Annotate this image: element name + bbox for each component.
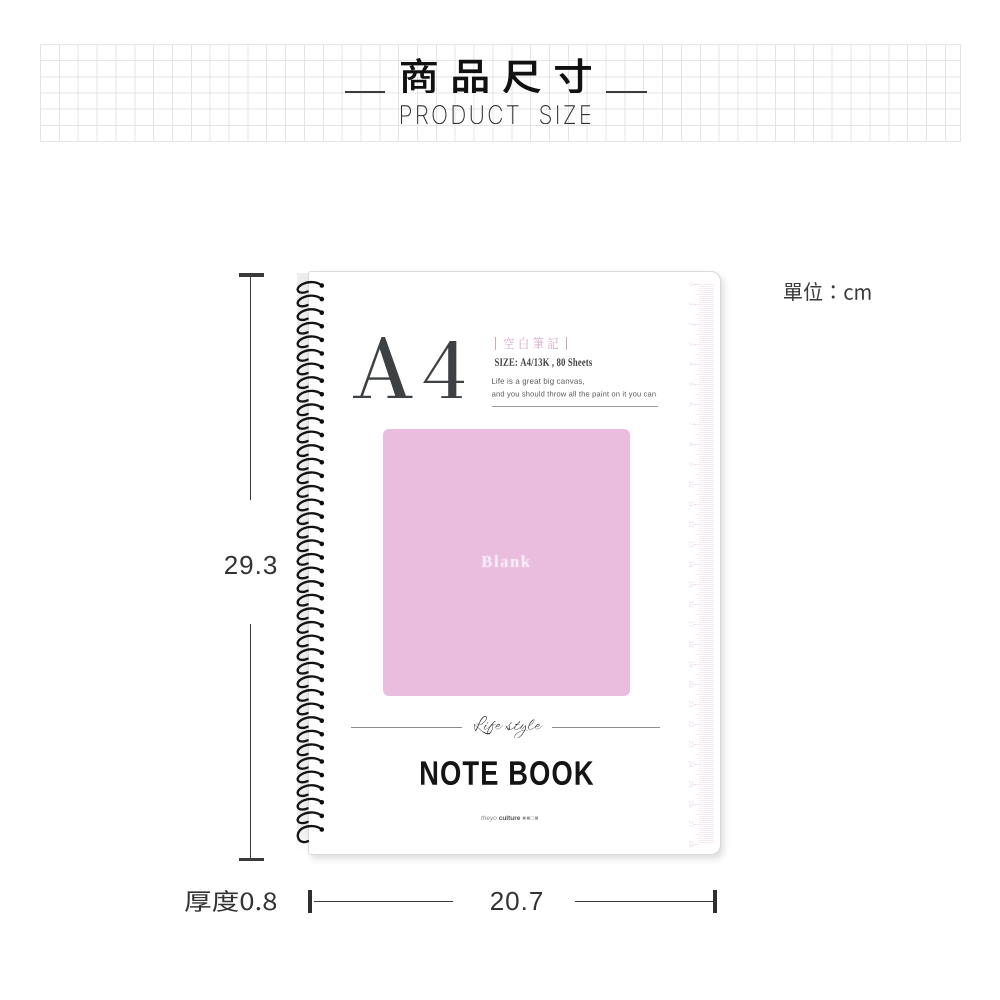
svg-text:13: 13 [687, 540, 694, 548]
svg-text:11: 11 [687, 501, 694, 508]
svg-text:0: 0 [687, 282, 694, 286]
svg-text:15: 15 [687, 580, 694, 588]
svg-text:19: 19 [687, 660, 694, 668]
svg-text:7: 7 [687, 422, 694, 426]
svg-text:1: 1 [687, 302, 694, 306]
svg-text:10: 10 [687, 480, 694, 488]
svg-text:24: 24 [687, 760, 694, 768]
svg-text:8: 8 [687, 442, 694, 446]
svg-text:17: 17 [687, 620, 694, 628]
svg-text:5: 5 [687, 382, 694, 386]
svg-text:20: 20 [687, 680, 694, 688]
svg-text:9: 9 [687, 462, 694, 466]
svg-text:26: 26 [687, 800, 694, 808]
svg-text:25: 25 [687, 780, 694, 788]
svg-text:18: 18 [687, 640, 694, 648]
svg-text:3: 3 [687, 342, 694, 346]
svg-text:4: 4 [687, 362, 694, 366]
svg-text:16: 16 [687, 600, 694, 608]
svg-text:14: 14 [687, 560, 694, 568]
svg-text:23: 23 [687, 740, 694, 748]
svg-text:27: 27 [687, 820, 694, 828]
svg-text:22: 22 [687, 720, 694, 728]
svg-text:6: 6 [687, 402, 694, 406]
svg-text:21: 21 [687, 700, 694, 708]
svg-text:28: 28 [687, 840, 694, 848]
svg-text:12: 12 [687, 520, 694, 528]
svg-text:2: 2 [687, 322, 694, 326]
